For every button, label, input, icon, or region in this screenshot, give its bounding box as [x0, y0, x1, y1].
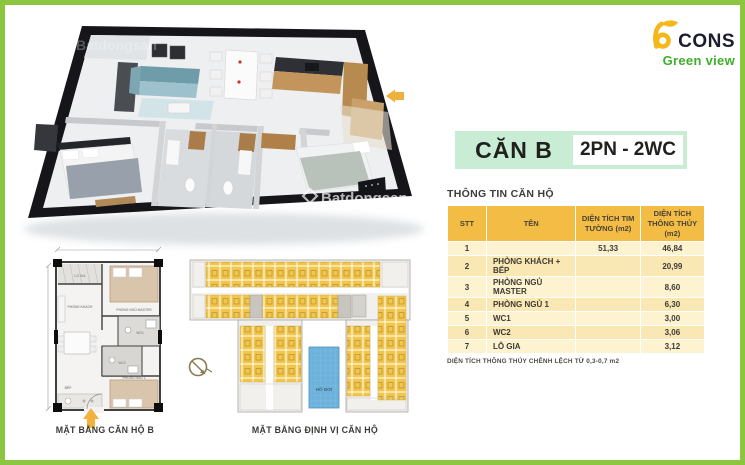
label-wc1: WC1 [136, 331, 143, 335]
table-row: 151,3346,84 [448, 242, 704, 255]
unit-name: CĂN B [455, 137, 573, 164]
site-plan-caption: MẶT BẰNG ĐỊNH VỊ CĂN HỘ [230, 425, 400, 435]
hdr-stt: STT [448, 206, 486, 241]
floorplan-2d: LÔ GIA PHÒNG NGỦ MASTER PHÒNG KHÁCH WC1 … [46, 247, 163, 428]
apartment-info: THÔNG TIN CĂN HỘ STT TÊN DIỆN TÍCH TIM T… [447, 188, 705, 365]
table-row: 7LÔ GIA3,12 [448, 340, 704, 353]
bedroom2-wardrobe [261, 133, 296, 150]
label-bedroom1: PHÒNG NGỦ 1 [122, 375, 145, 380]
unit-plan-caption: MẶT BẰNG CĂN HỘ B [40, 425, 170, 435]
header-row: STT TÊN DIỆN TÍCH TIM TƯỜNG (m2) DIỆN TÍ… [448, 206, 704, 241]
unit-badge: CĂN B 2PN - 2WC [455, 131, 687, 169]
table-row: 3PHÒNG NGỦ MASTER8,60 [448, 277, 704, 297]
area-table: STT TÊN DIỆN TÍCH TIM TƯỜNG (m2) DIỆN TÍ… [447, 205, 705, 354]
sofa-2d [58, 296, 65, 322]
site-plan: HỒ BƠI [190, 260, 411, 412]
label-logia: LÔ GIA [74, 273, 86, 278]
svg-text:Batdongsan: Batdongsan [321, 190, 408, 207]
hdr-thong-thuy: DIỆN TÍCH THÔNG THỦY (m2) [641, 206, 704, 241]
label-living: PHÒNG KHÁCH [68, 304, 94, 309]
master-wardrobe [34, 124, 58, 152]
flyer-canvas: Batdongsan Batdongsan [0, 0, 745, 465]
label-wc2: WC2 [118, 361, 125, 365]
compass-icon [190, 359, 213, 376]
brand-name: CONS [678, 33, 735, 51]
label-master: PHÒNG NGỦ MASTER [116, 307, 152, 312]
dining-table [224, 50, 258, 100]
table-row: 5WC13,00 [448, 312, 704, 325]
hdr-ten: TÊN [487, 206, 576, 241]
brand-subtitle: Green view [631, 53, 735, 68]
watermark-faint: Batdongsan [76, 37, 157, 53]
table-row: 6WC23,06 [448, 326, 704, 339]
entrance-arrow-icon [386, 90, 404, 103]
kitchen-counter-2d [58, 394, 102, 408]
table-row: 4PHÒNG NGỦ 16,30 [448, 298, 704, 311]
pool [309, 347, 339, 408]
brand-logo: CONS Green view [631, 17, 735, 68]
sofa [139, 66, 200, 84]
unit-config: 2PN - 2WC [573, 135, 683, 165]
coffee-table [168, 103, 190, 113]
info-title: THÔNG TIN CĂN HỘ [447, 188, 705, 200]
table-footnote: DIỆN TÍCH THÔNG THỦY CHÊNH LỆCH TỪ 0,3-0… [447, 358, 705, 365]
dining-2d [64, 332, 90, 354]
plan-shadow [24, 213, 424, 245]
floorplan-3d: Batdongsan Batdongsan [24, 26, 424, 245]
label-kitchen: BẾP [65, 385, 73, 390]
table-row: 2PHÒNG KHÁCH + BẾP20,99 [448, 256, 704, 276]
bcons-b-icon [649, 17, 679, 51]
hdr-tim-tuong: DIỆN TÍCH TIM TƯỜNG (m2) [576, 206, 639, 241]
pool-label: HỒ BƠI [316, 386, 333, 392]
